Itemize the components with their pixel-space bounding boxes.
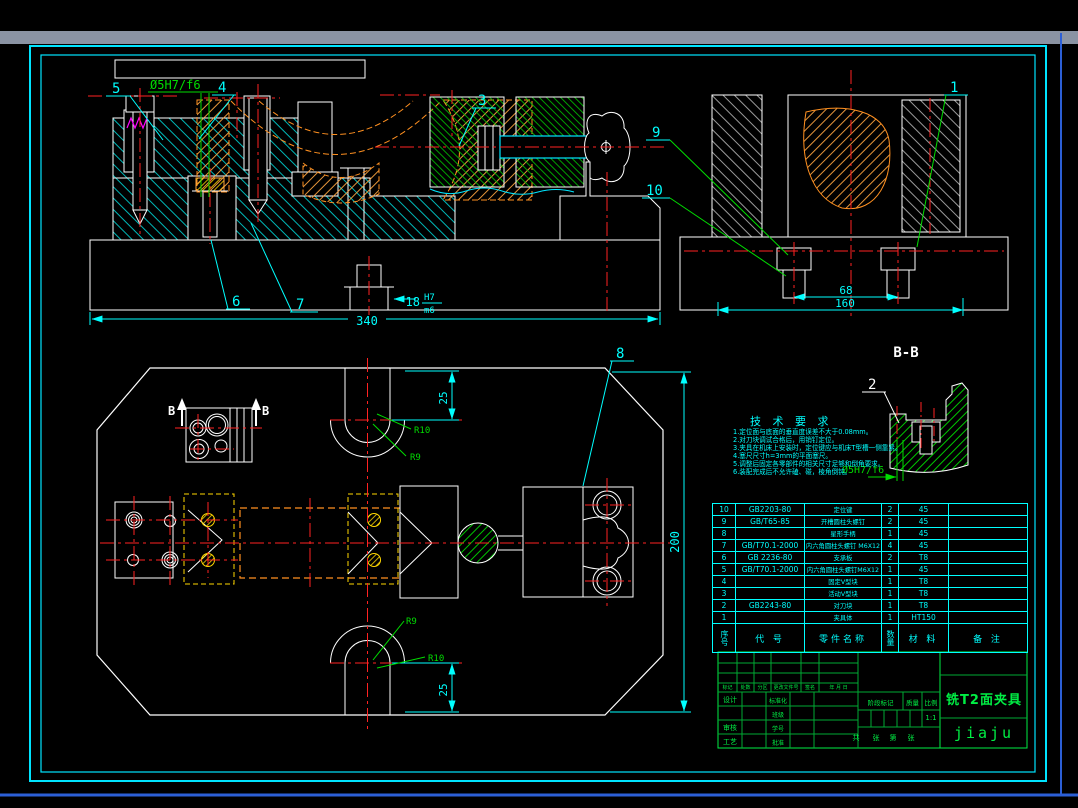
tb-standard: 标准化 — [766, 696, 790, 705]
parts-cell-no: 5 — [713, 564, 736, 576]
parts-cell-note — [949, 552, 1028, 564]
dim-25-top: 25 — [437, 391, 450, 404]
parts-cell-no: 8 — [713, 528, 736, 540]
parts-cell-material: T8 — [899, 588, 949, 600]
tb-sheet-unit1: 张 — [869, 733, 883, 743]
dim-r9-top: R9 — [410, 453, 421, 463]
dim-fit-upper: H7 — [424, 293, 435, 303]
tool-setting-block — [186, 408, 252, 462]
pin-fit-front-label: Ø5H7/f6 — [150, 78, 201, 92]
dim-fit-lower: m6 — [424, 306, 435, 316]
balloon-1: 1 — [950, 80, 958, 96]
parts-cell-qty: 1 — [882, 600, 899, 612]
tb-stage: 阶段标记 — [858, 697, 903, 707]
balloon-8: 8 — [616, 346, 624, 362]
parts-table-body: 10GB2203-80定位键2459GB/T65-85开槽圆柱头螺钉2458星形… — [712, 503, 1028, 624]
balloon-6: 6 — [232, 294, 240, 310]
parts-cell-note — [949, 588, 1028, 600]
parts-cell-name: 活动V型块 — [805, 588, 882, 600]
parts-cell-material: 45 — [899, 540, 949, 552]
parts-cell-qty: 1 — [882, 564, 899, 576]
section-arrow-right-label: B — [262, 404, 269, 418]
parts-header-qty: 数量 — [882, 624, 899, 653]
balloon-7: 7 — [296, 297, 304, 313]
parts-cell-no: 9 — [713, 516, 736, 528]
parts-cell-code: GB 2236-80 — [736, 552, 805, 564]
parts-cell-name: 固定V型块 — [805, 576, 882, 588]
parts-cell-no: 4 — [713, 576, 736, 588]
tb-design: 设计 — [718, 695, 742, 705]
hex-nut — [478, 126, 500, 170]
tb-scale: 比例 — [922, 697, 940, 707]
parts-cell-material: T8 — [899, 600, 949, 612]
top-gray-band — [0, 31, 1078, 44]
parts-cell-name: 对刀块 — [805, 600, 882, 612]
tb-mass: 质量 — [903, 697, 922, 707]
tb-class: 班级 — [766, 710, 790, 719]
parts-cell-no: 2 — [713, 600, 736, 612]
parts-cell-code: GB/T65-85 — [736, 516, 805, 528]
dim-25-bottom: 25 — [437, 683, 450, 696]
parts-cell-code — [736, 528, 805, 540]
balloon-5: 5 — [112, 81, 120, 97]
drawing-code: jiaju — [941, 724, 1027, 742]
parts-cell-code: GB2203-80 — [736, 504, 805, 516]
tech-requirements-list: 1.定位面与底面的垂直度误差不大于0.08mm。2.对刀块调试合格后，用销钉定位… — [733, 429, 923, 476]
parts-cell-material: 45 — [899, 564, 949, 576]
tb-scale-value: 1:1 — [922, 714, 940, 722]
tb-rev-doc: 更改文件号 — [771, 684, 801, 691]
dim-340: 340 — [356, 314, 378, 328]
tech-req-line: 6.装配完成后不允许磕、碰，棱角倒钝。 — [733, 469, 923, 477]
cad-viewer: 5 4 3 6 7 8 9 10 1 2 340 18 H7 m6 68 160… — [0, 0, 1078, 808]
dim-68: 68 — [839, 284, 852, 297]
parts-cell-note — [949, 564, 1028, 576]
tb-approve: 批准 — [766, 738, 790, 747]
parts-cell-code — [736, 576, 805, 588]
balloon-3: 3 — [478, 93, 486, 109]
plan-view — [97, 358, 691, 730]
parts-header-name: 零件名称 — [805, 624, 882, 653]
tb-rev-mark: 标记 — [719, 684, 736, 691]
parts-cell-qty: 1 — [882, 528, 899, 540]
tb-check: 审核 — [718, 723, 742, 733]
parts-cell-qty: 2 — [882, 504, 899, 516]
dim-160: 160 — [835, 297, 855, 310]
dim-200: 200 — [668, 531, 682, 553]
parts-table-header: 序号 代 号 零件名称 数量 材 料 备 注 — [712, 623, 1028, 653]
top-left-box — [115, 60, 365, 78]
parts-cell-material: 45 — [899, 528, 949, 540]
front-view — [88, 84, 668, 315]
tb-process: 工艺 — [718, 737, 742, 747]
parts-cell-name: 星形手柄 — [805, 528, 882, 540]
parts-cell-qty: 1 — [882, 576, 899, 588]
parts-cell-name: 内六角圆柱头螺钉 M6X12 — [805, 540, 882, 552]
parts-cell-code — [736, 588, 805, 600]
parts-header-no: 序号 — [713, 624, 736, 653]
parts-cell-note — [949, 600, 1028, 612]
parts-cell-code: GB2243-80 — [736, 600, 805, 612]
parts-cell-name: 支承板 — [805, 552, 882, 564]
tb-student-id: 学号 — [766, 724, 790, 733]
parts-cell-no: 3 — [713, 588, 736, 600]
parts-cell-qty: 4 — [882, 540, 899, 552]
parts-header-code: 代 号 — [736, 624, 805, 653]
parts-header-material: 材 料 — [899, 624, 949, 653]
dim-r10-top: R10 — [414, 426, 430, 436]
section-arrow-left-label: B — [168, 404, 175, 418]
tb-rev-date: 年 月 日 — [819, 684, 858, 691]
parts-cell-qty: 2 — [882, 552, 899, 564]
balloon-9: 9 — [652, 125, 660, 141]
parts-cell-no: 6 — [713, 552, 736, 564]
parts-cell-note — [949, 516, 1028, 528]
tb-rev-count: 处数 — [737, 684, 754, 691]
tb-rev-sign: 签名 — [801, 684, 819, 691]
parts-cell-note — [949, 576, 1028, 588]
parts-cell-material: 45 — [899, 504, 949, 516]
section-label: B-B — [893, 345, 918, 361]
tb-sheet-unit2: 张 — [904, 733, 918, 743]
balloon-2: 2 — [868, 377, 876, 393]
parts-cell-no: 7 — [713, 540, 736, 552]
parts-cell-name: 开槽圆柱头螺钉 — [805, 516, 882, 528]
parts-cell-name: 定位键 — [805, 504, 882, 516]
drawing-title: 铣T2面夹具 — [941, 689, 1027, 708]
parts-cell-note — [949, 528, 1028, 540]
parts-cell-qty: 1 — [882, 588, 899, 600]
dim-18: 18 — [406, 295, 420, 309]
fixed-v-block — [113, 118, 455, 252]
parts-cell-qty: 2 — [882, 516, 899, 528]
parts-cell-code: GB/T70.1-2000 — [736, 540, 805, 552]
fixture-base — [90, 240, 660, 310]
dim-r10-bottom: R10 — [428, 654, 444, 664]
parts-cell-note — [949, 540, 1028, 552]
parts-header-note: 备 注 — [949, 624, 1028, 653]
parts-cell-note — [949, 504, 1028, 516]
parts-cell-material: T8 — [899, 552, 949, 564]
parts-cell-material: T8 — [899, 576, 949, 588]
tb-sheet-total-label: 共 — [849, 733, 863, 743]
tb-rev-zone: 分区 — [754, 684, 771, 691]
tech-requirements-title: 技 术 要 求 — [750, 413, 833, 429]
parts-cell-code: GB/T70.1-2000 — [736, 564, 805, 576]
balloon-4: 4 — [218, 80, 226, 96]
side-view — [680, 70, 1008, 318]
dim-r9-bottom: R9 — [406, 617, 417, 627]
parts-cell-name: 内六角圆柱头螺钉M6X12 — [805, 564, 882, 576]
fixed-v-plate-plan — [115, 502, 178, 578]
tb-sheet-no-label: 第 — [886, 733, 900, 743]
balloon-10: 10 — [646, 183, 663, 199]
hidden-v-block-left — [184, 494, 234, 584]
parts-cell-no: 10 — [713, 504, 736, 516]
parts-cell-material: 45 — [899, 516, 949, 528]
